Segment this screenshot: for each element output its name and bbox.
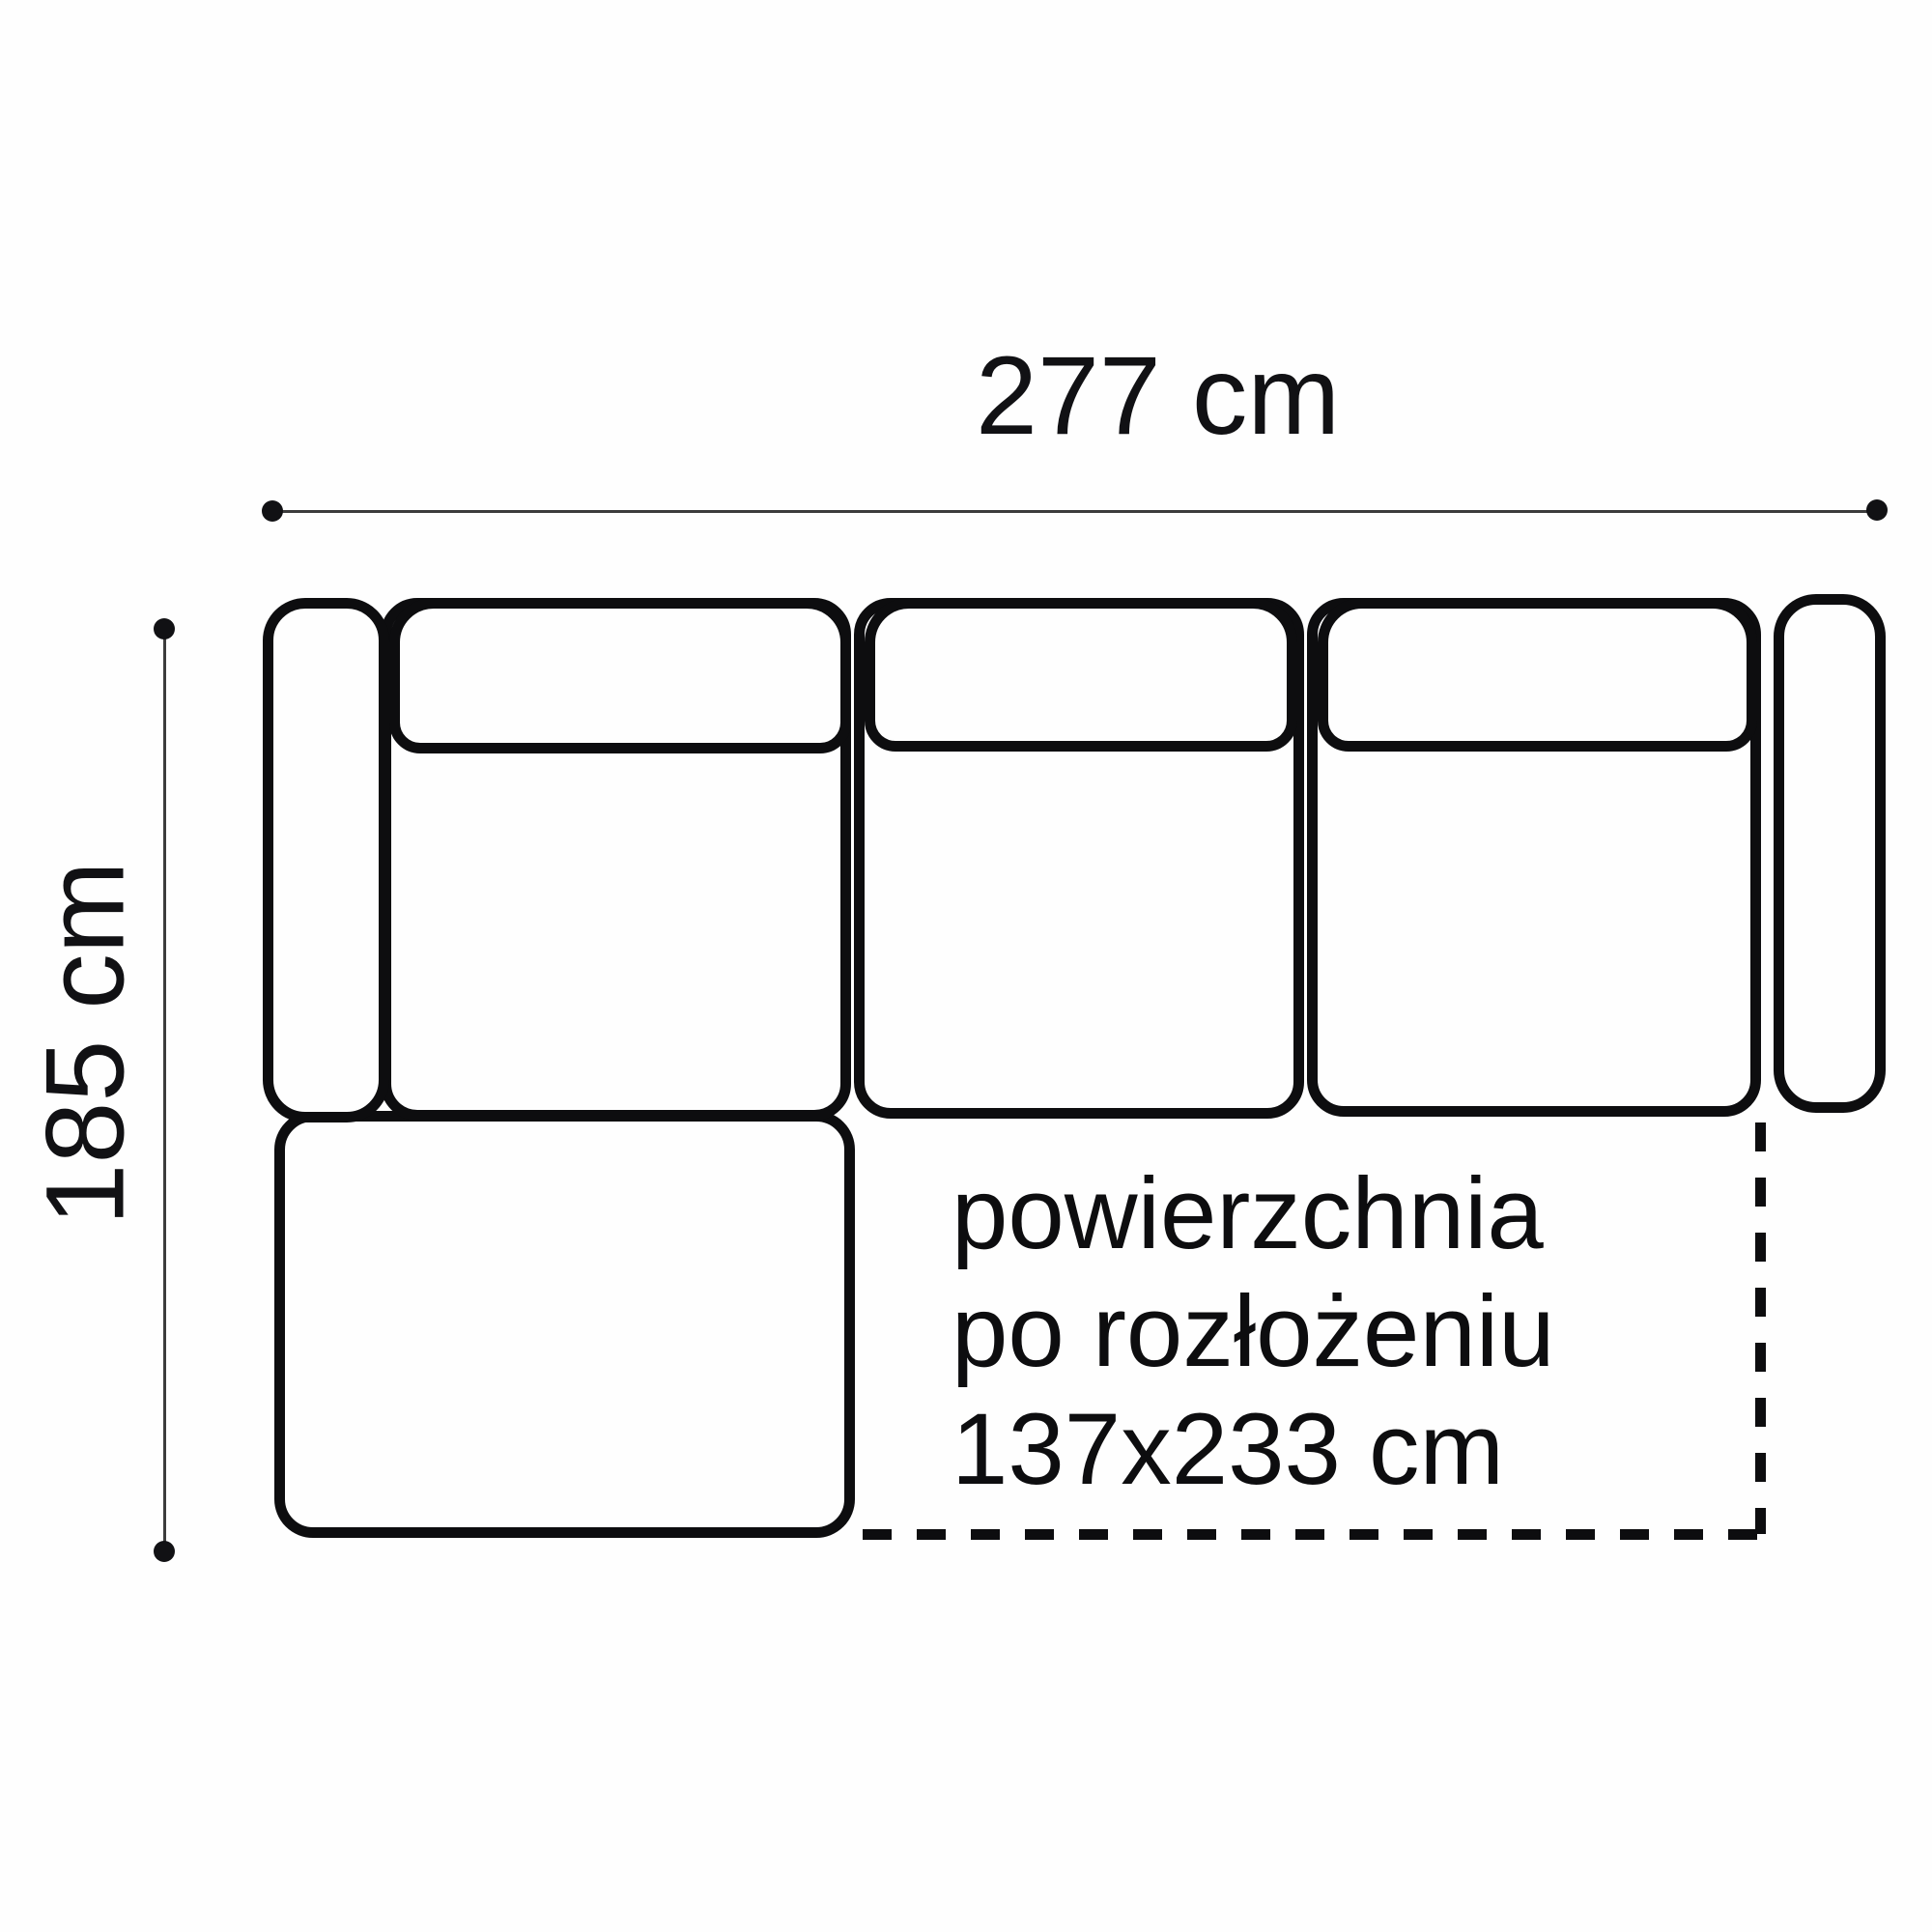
unfolded-area-dashed-vertical-line	[1755, 1122, 1766, 1534]
width-dimension-endpoint-right-dot	[1866, 499, 1888, 521]
width-dimension-line	[272, 510, 1877, 513]
height-dimension-endpoint-bottom-dot	[154, 1541, 175, 1562]
unfolded-area-note: powierzchnia po rozłożeniu 137x233 cm	[952, 1155, 1555, 1509]
unfolded-area-note-line-1: powierzchnia	[952, 1155, 1555, 1273]
left-armrest	[263, 598, 389, 1122]
height-dimension-endpoint-top-dot	[154, 618, 175, 639]
unfolded-area-dashed-horizontal-line	[863, 1529, 1776, 1540]
back-cushion-2	[865, 598, 1297, 752]
chaise-longue-section	[274, 1111, 855, 1538]
height-dimension-label: 185 cm	[31, 861, 142, 1225]
right-armrest	[1774, 594, 1886, 1113]
height-dimension-line	[163, 629, 166, 1551]
width-dimension-label: 277 cm	[976, 341, 1340, 452]
sofa-dimension-diagram: 277 cm 185 cm powierzchnia po rozłożeniu…	[0, 0, 1932, 1932]
unfolded-area-note-line-2: po rozłożeniu	[952, 1273, 1555, 1391]
unfolded-area-note-line-3: 137x233 cm	[952, 1391, 1555, 1509]
back-cushion-3	[1318, 598, 1757, 752]
width-dimension-endpoint-left-dot	[262, 500, 283, 522]
back-cushion-1	[389, 598, 851, 753]
